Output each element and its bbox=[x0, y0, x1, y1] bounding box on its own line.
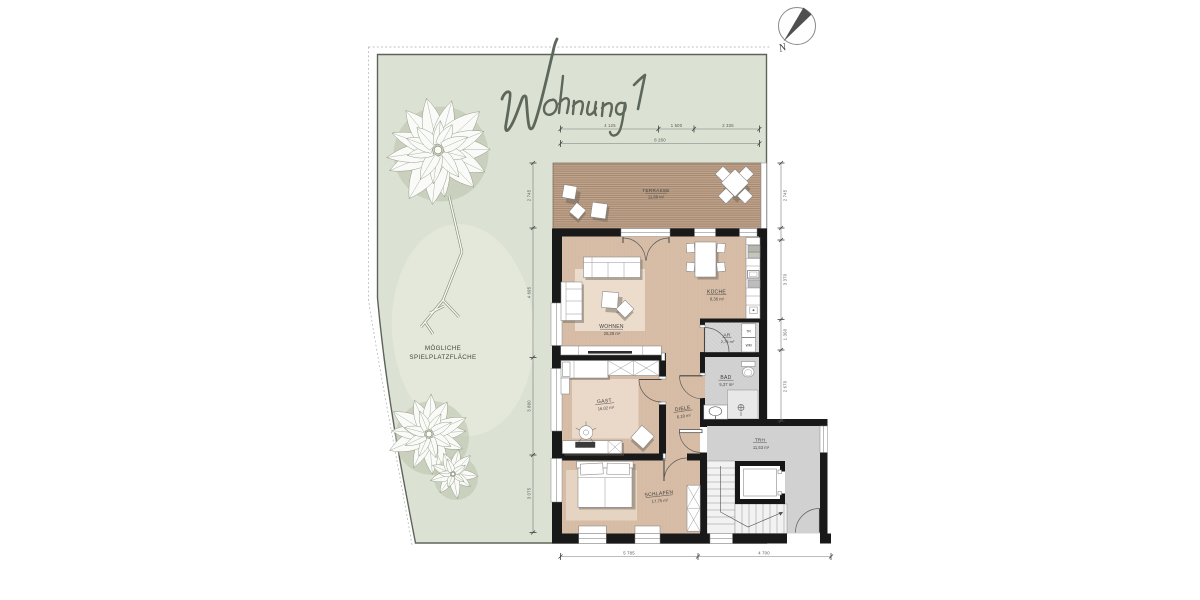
svg-text:5,37 m²: 5,37 m² bbox=[719, 382, 734, 387]
svg-text:4 125: 4 125 bbox=[604, 123, 616, 128]
svg-text:2 670: 2 670 bbox=[783, 380, 788, 392]
svg-text:3 075: 3 075 bbox=[527, 487, 532, 499]
svg-text:2,78 m²: 2,78 m² bbox=[721, 339, 735, 344]
svg-text:KÜCHE: KÜCHE bbox=[707, 289, 726, 296]
svg-text:2 335: 2 335 bbox=[722, 123, 734, 128]
svg-text:2 745: 2 745 bbox=[783, 189, 788, 201]
svg-text:SPIELPLATZFLÄCHE: SPIELPLATZFLÄCHE bbox=[409, 354, 476, 361]
svg-text:11,88 m²: 11,88 m² bbox=[648, 195, 665, 200]
svg-text:5 785: 5 785 bbox=[623, 551, 635, 556]
svg-text:4 695: 4 695 bbox=[527, 286, 532, 298]
svg-text:TR: TR bbox=[746, 330, 751, 334]
svg-text:1 500: 1 500 bbox=[671, 123, 683, 128]
svg-text:MÖGLICHE: MÖGLICHE bbox=[425, 345, 461, 352]
svg-text:11,53 m²: 11,53 m² bbox=[753, 445, 770, 450]
svg-text:4 700: 4 700 bbox=[758, 551, 770, 556]
svg-text:3 890: 3 890 bbox=[527, 400, 532, 412]
svg-text:TRH: TRH bbox=[755, 438, 765, 443]
svg-text:AR: AR bbox=[724, 333, 731, 338]
svg-text:8 260: 8 260 bbox=[654, 138, 666, 143]
svg-text:WM: WM bbox=[746, 344, 752, 348]
svg-text:28,28 m²: 28,28 m² bbox=[604, 331, 621, 336]
svg-text:3 370: 3 370 bbox=[783, 273, 788, 285]
svg-text:2 745: 2 745 bbox=[527, 189, 532, 201]
svg-text:TERRASSE: TERRASSE bbox=[642, 188, 669, 193]
svg-text:1 300: 1 300 bbox=[783, 328, 788, 340]
svg-text:8,36 m²: 8,36 m² bbox=[710, 297, 725, 302]
